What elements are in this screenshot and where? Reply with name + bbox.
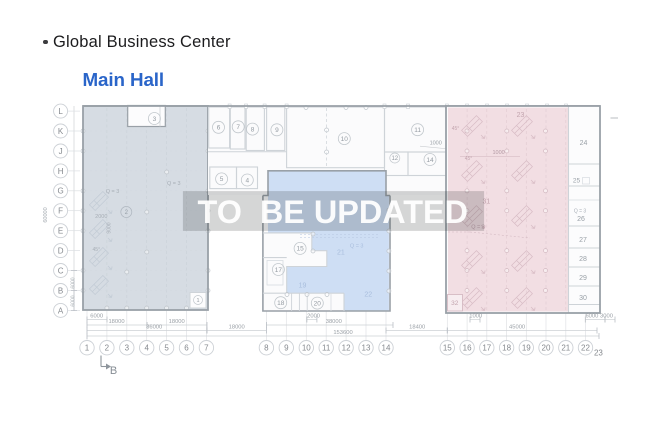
- svg-text:5: 5: [164, 344, 169, 353]
- svg-text:45°: 45°: [452, 126, 460, 132]
- svg-text:23: 23: [594, 348, 603, 357]
- svg-text:6000: 6000: [585, 314, 598, 320]
- svg-text:3000: 3000: [600, 314, 613, 320]
- svg-text:38000: 38000: [326, 319, 342, 325]
- svg-text:45000: 45000: [509, 325, 525, 331]
- svg-text:23: 23: [517, 112, 525, 119]
- svg-text:22: 22: [581, 344, 590, 353]
- svg-text:32: 32: [451, 300, 459, 307]
- svg-text:B: B: [58, 286, 63, 295]
- svg-text:7: 7: [204, 344, 209, 353]
- svg-text:G: G: [57, 187, 63, 196]
- svg-text:5: 5: [220, 176, 224, 183]
- svg-text:12: 12: [342, 344, 351, 353]
- svg-text:17: 17: [275, 267, 283, 274]
- svg-text:15: 15: [296, 246, 304, 253]
- svg-text:K: K: [58, 127, 64, 136]
- svg-text:6: 6: [217, 125, 221, 132]
- svg-text:15: 15: [443, 344, 452, 353]
- svg-text:20: 20: [314, 300, 322, 307]
- svg-text:11: 11: [322, 344, 331, 353]
- svg-text:29: 29: [579, 275, 587, 282]
- svg-text:2000: 2000: [307, 314, 320, 320]
- svg-text:6000: 6000: [71, 277, 77, 288]
- svg-text:2: 2: [105, 344, 110, 353]
- svg-text:25: 25: [573, 178, 581, 185]
- svg-text:18000: 18000: [229, 325, 245, 331]
- svg-text:F: F: [58, 207, 63, 216]
- svg-text:A: A: [58, 306, 64, 315]
- svg-text:Q = 3: Q = 3: [106, 189, 120, 195]
- svg-text:J: J: [59, 147, 63, 156]
- svg-text:Q = 3: Q = 3: [350, 244, 364, 250]
- svg-text:153600: 153600: [333, 330, 352, 336]
- svg-text:19: 19: [522, 344, 531, 353]
- svg-text:H: H: [58, 167, 64, 176]
- svg-text:8: 8: [251, 126, 255, 133]
- svg-text:2000: 2000: [95, 214, 107, 220]
- svg-text:14: 14: [382, 344, 391, 353]
- svg-text:16: 16: [463, 344, 472, 353]
- svg-text:1: 1: [196, 298, 199, 304]
- svg-text:24: 24: [580, 140, 588, 147]
- svg-text:3: 3: [153, 116, 157, 123]
- svg-text:C: C: [58, 266, 64, 275]
- svg-text:4: 4: [144, 344, 149, 353]
- svg-text:3: 3: [125, 344, 130, 353]
- svg-text:1: 1: [85, 344, 90, 353]
- svg-text:18: 18: [277, 300, 285, 307]
- svg-text:10: 10: [341, 136, 349, 143]
- svg-text:17: 17: [482, 344, 491, 353]
- svg-text:21: 21: [337, 250, 345, 257]
- svg-text:L: L: [58, 107, 63, 116]
- svg-text:B: B: [110, 365, 117, 377]
- svg-text:1000: 1000: [492, 150, 504, 156]
- svg-text:6000: 6000: [90, 314, 103, 320]
- svg-text:21: 21: [561, 344, 570, 353]
- svg-text:28: 28: [579, 256, 587, 263]
- svg-text:13: 13: [362, 344, 371, 353]
- svg-text:18000: 18000: [108, 319, 124, 325]
- svg-text:27: 27: [579, 237, 587, 244]
- svg-text:7: 7: [236, 124, 240, 131]
- svg-text:20: 20: [542, 344, 551, 353]
- svg-text:TO BE UPDATED: TO BE UPDATED: [198, 194, 469, 230]
- svg-text:18: 18: [502, 344, 511, 353]
- svg-text:19: 19: [299, 283, 307, 290]
- svg-text:4: 4: [245, 177, 249, 184]
- svg-text:9: 9: [275, 127, 279, 134]
- svg-text:45°: 45°: [465, 156, 473, 162]
- svg-text:18400: 18400: [409, 325, 425, 331]
- svg-text:36000: 36000: [146, 325, 162, 331]
- svg-text:9: 9: [284, 344, 289, 353]
- svg-text:18000: 18000: [169, 319, 185, 325]
- svg-text:1000: 1000: [469, 314, 482, 320]
- svg-text:6: 6: [184, 344, 189, 353]
- svg-text:45°: 45°: [93, 247, 101, 253]
- svg-text:30: 30: [579, 295, 587, 302]
- svg-text:9000: 9000: [107, 222, 113, 233]
- svg-text:6000: 6000: [71, 295, 77, 306]
- svg-text:12: 12: [391, 156, 398, 162]
- svg-text:10: 10: [302, 344, 311, 353]
- svg-text:1000: 1000: [430, 141, 442, 147]
- svg-text:Q = 3: Q = 3: [167, 181, 181, 187]
- svg-text:11: 11: [414, 127, 421, 134]
- svg-text:14: 14: [426, 157, 434, 164]
- svg-text:Q = 3: Q = 3: [574, 209, 587, 215]
- svg-text:26: 26: [577, 216, 585, 223]
- svg-text:D: D: [58, 247, 64, 256]
- svg-text:8: 8: [264, 344, 269, 353]
- svg-text:E: E: [58, 227, 63, 236]
- svg-text:60000: 60000: [43, 207, 49, 222]
- svg-text:22: 22: [364, 291, 372, 298]
